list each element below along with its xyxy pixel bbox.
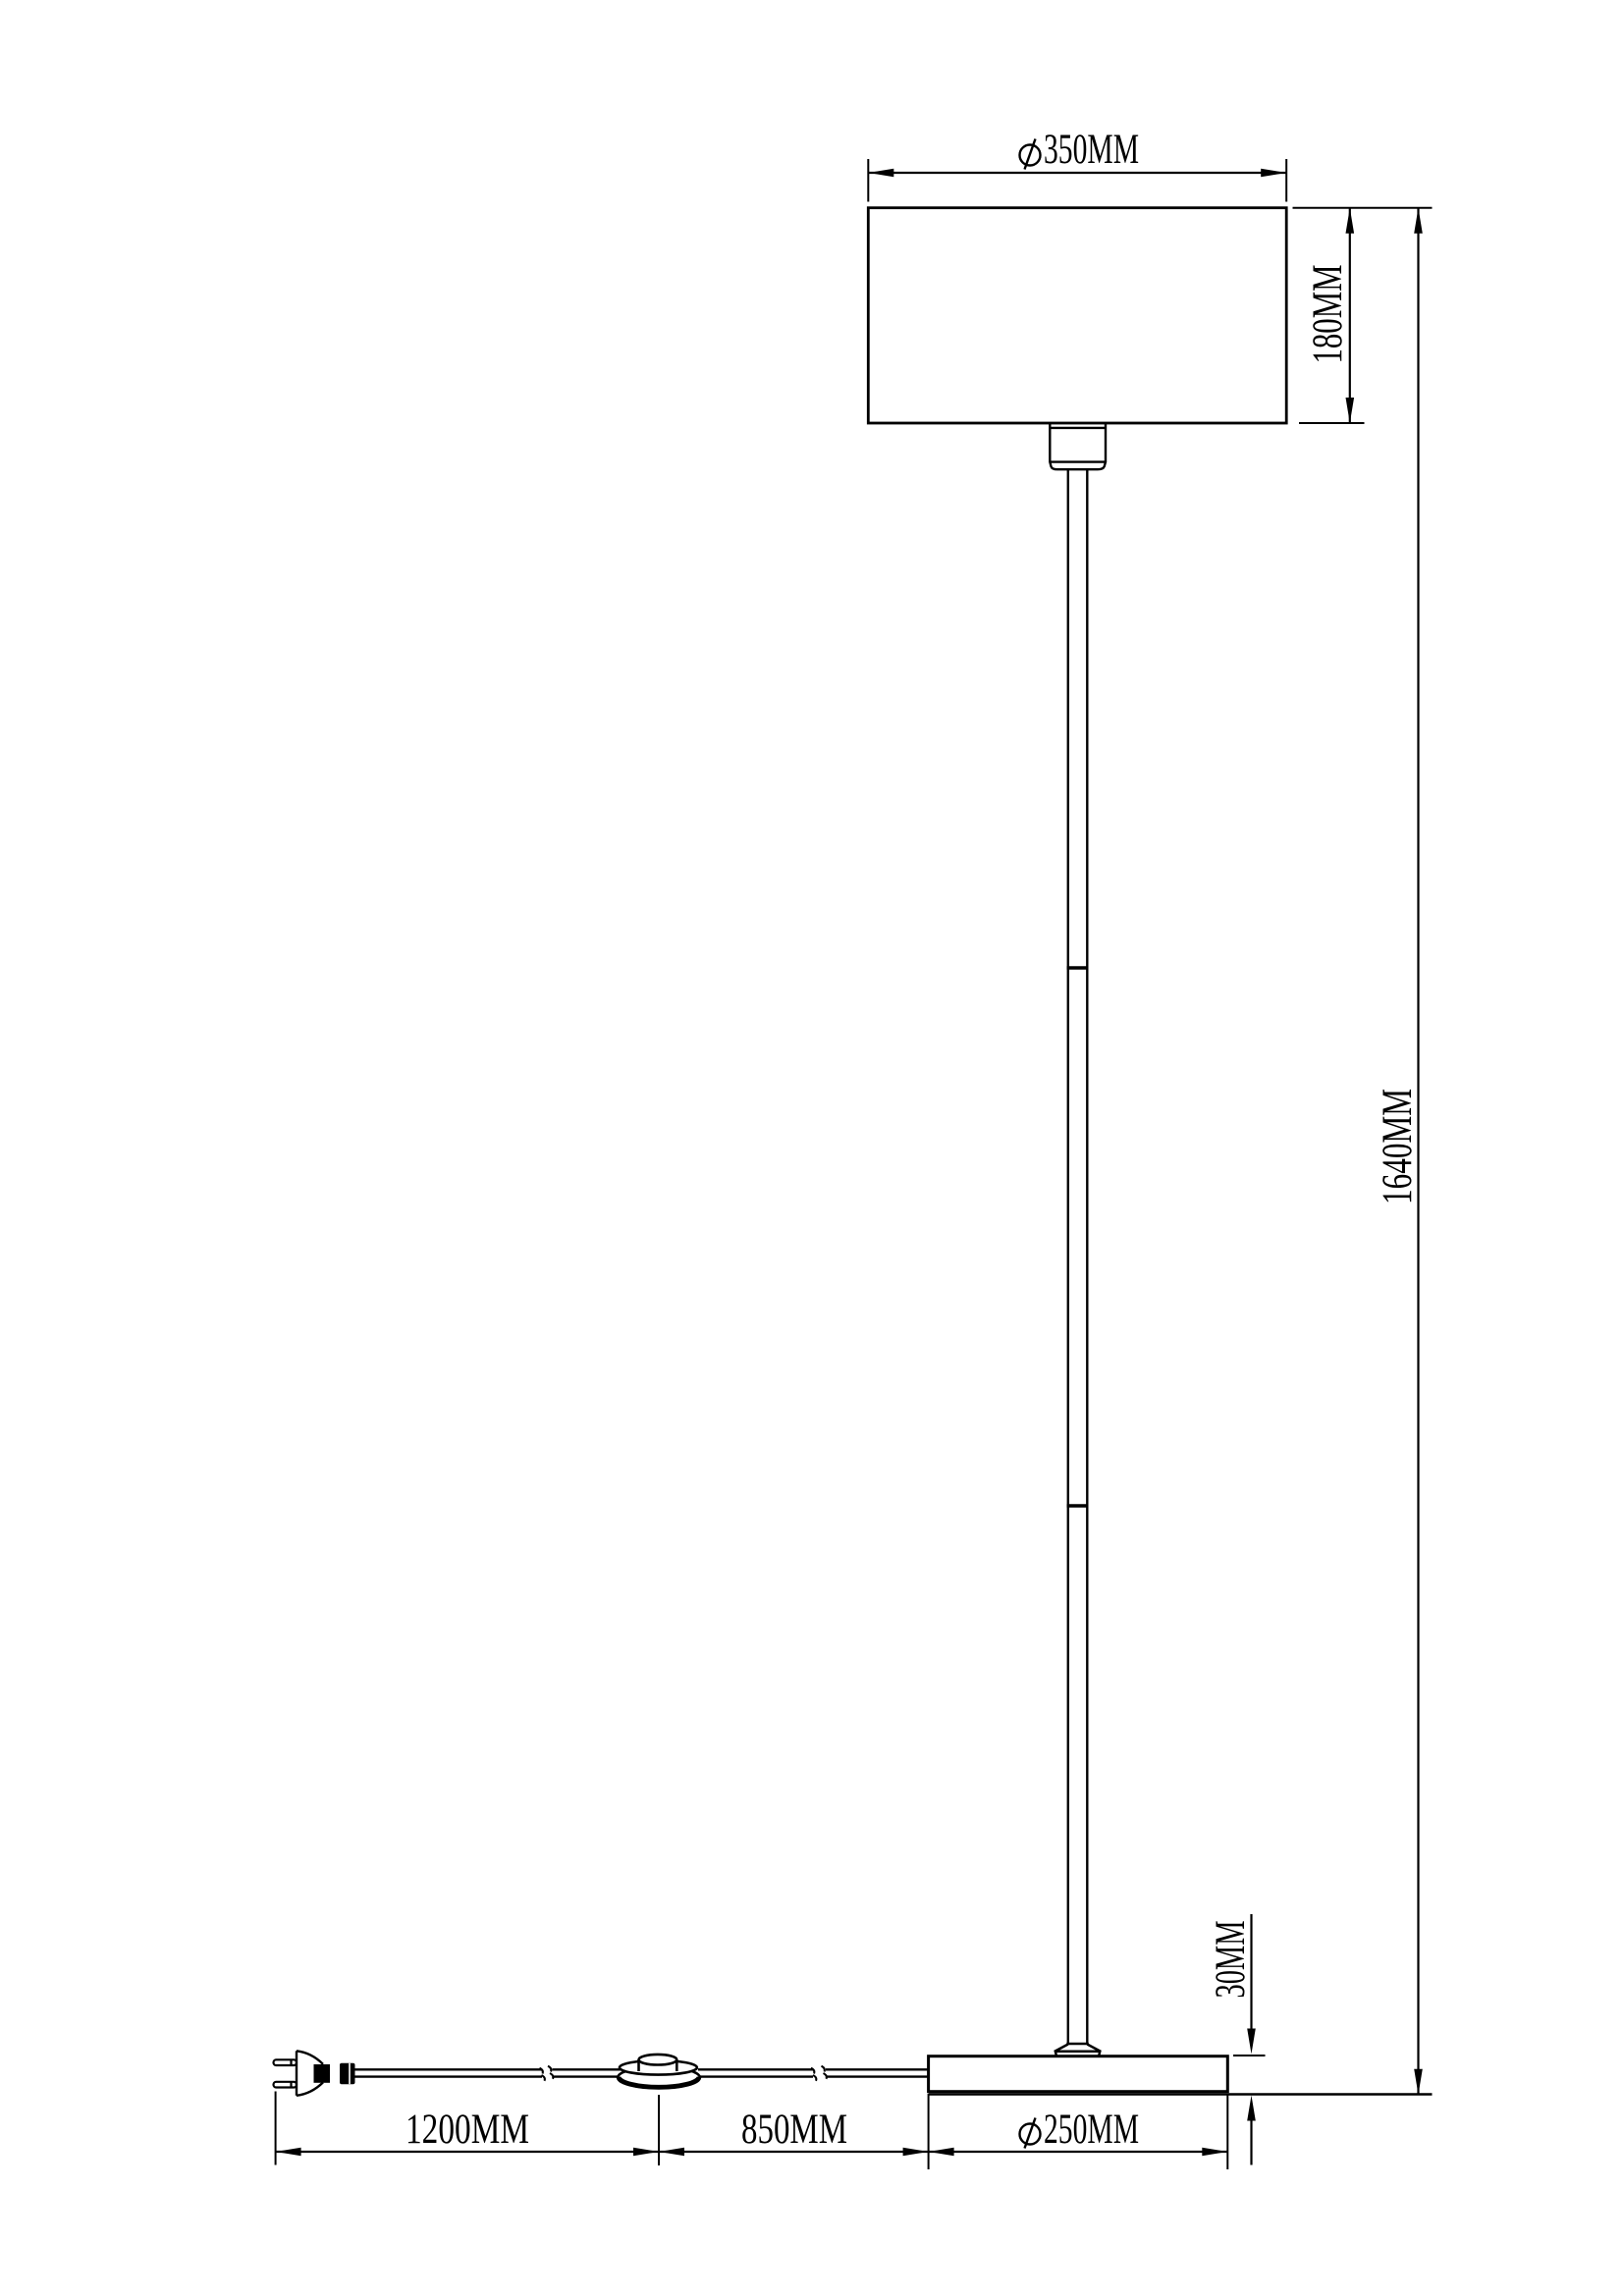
svg-text:250MM: 250MM — [1044, 2107, 1139, 2153]
svg-text:1200MM: 1200MM — [406, 2107, 529, 2153]
svg-text:180MM: 180MM — [1305, 265, 1351, 364]
svg-text:1640MM: 1640MM — [1375, 1089, 1421, 1204]
svg-text:350MM: 350MM — [1044, 127, 1139, 173]
svg-text:850MM: 850MM — [741, 2107, 847, 2153]
svg-text:30MM: 30MM — [1208, 1921, 1254, 1999]
